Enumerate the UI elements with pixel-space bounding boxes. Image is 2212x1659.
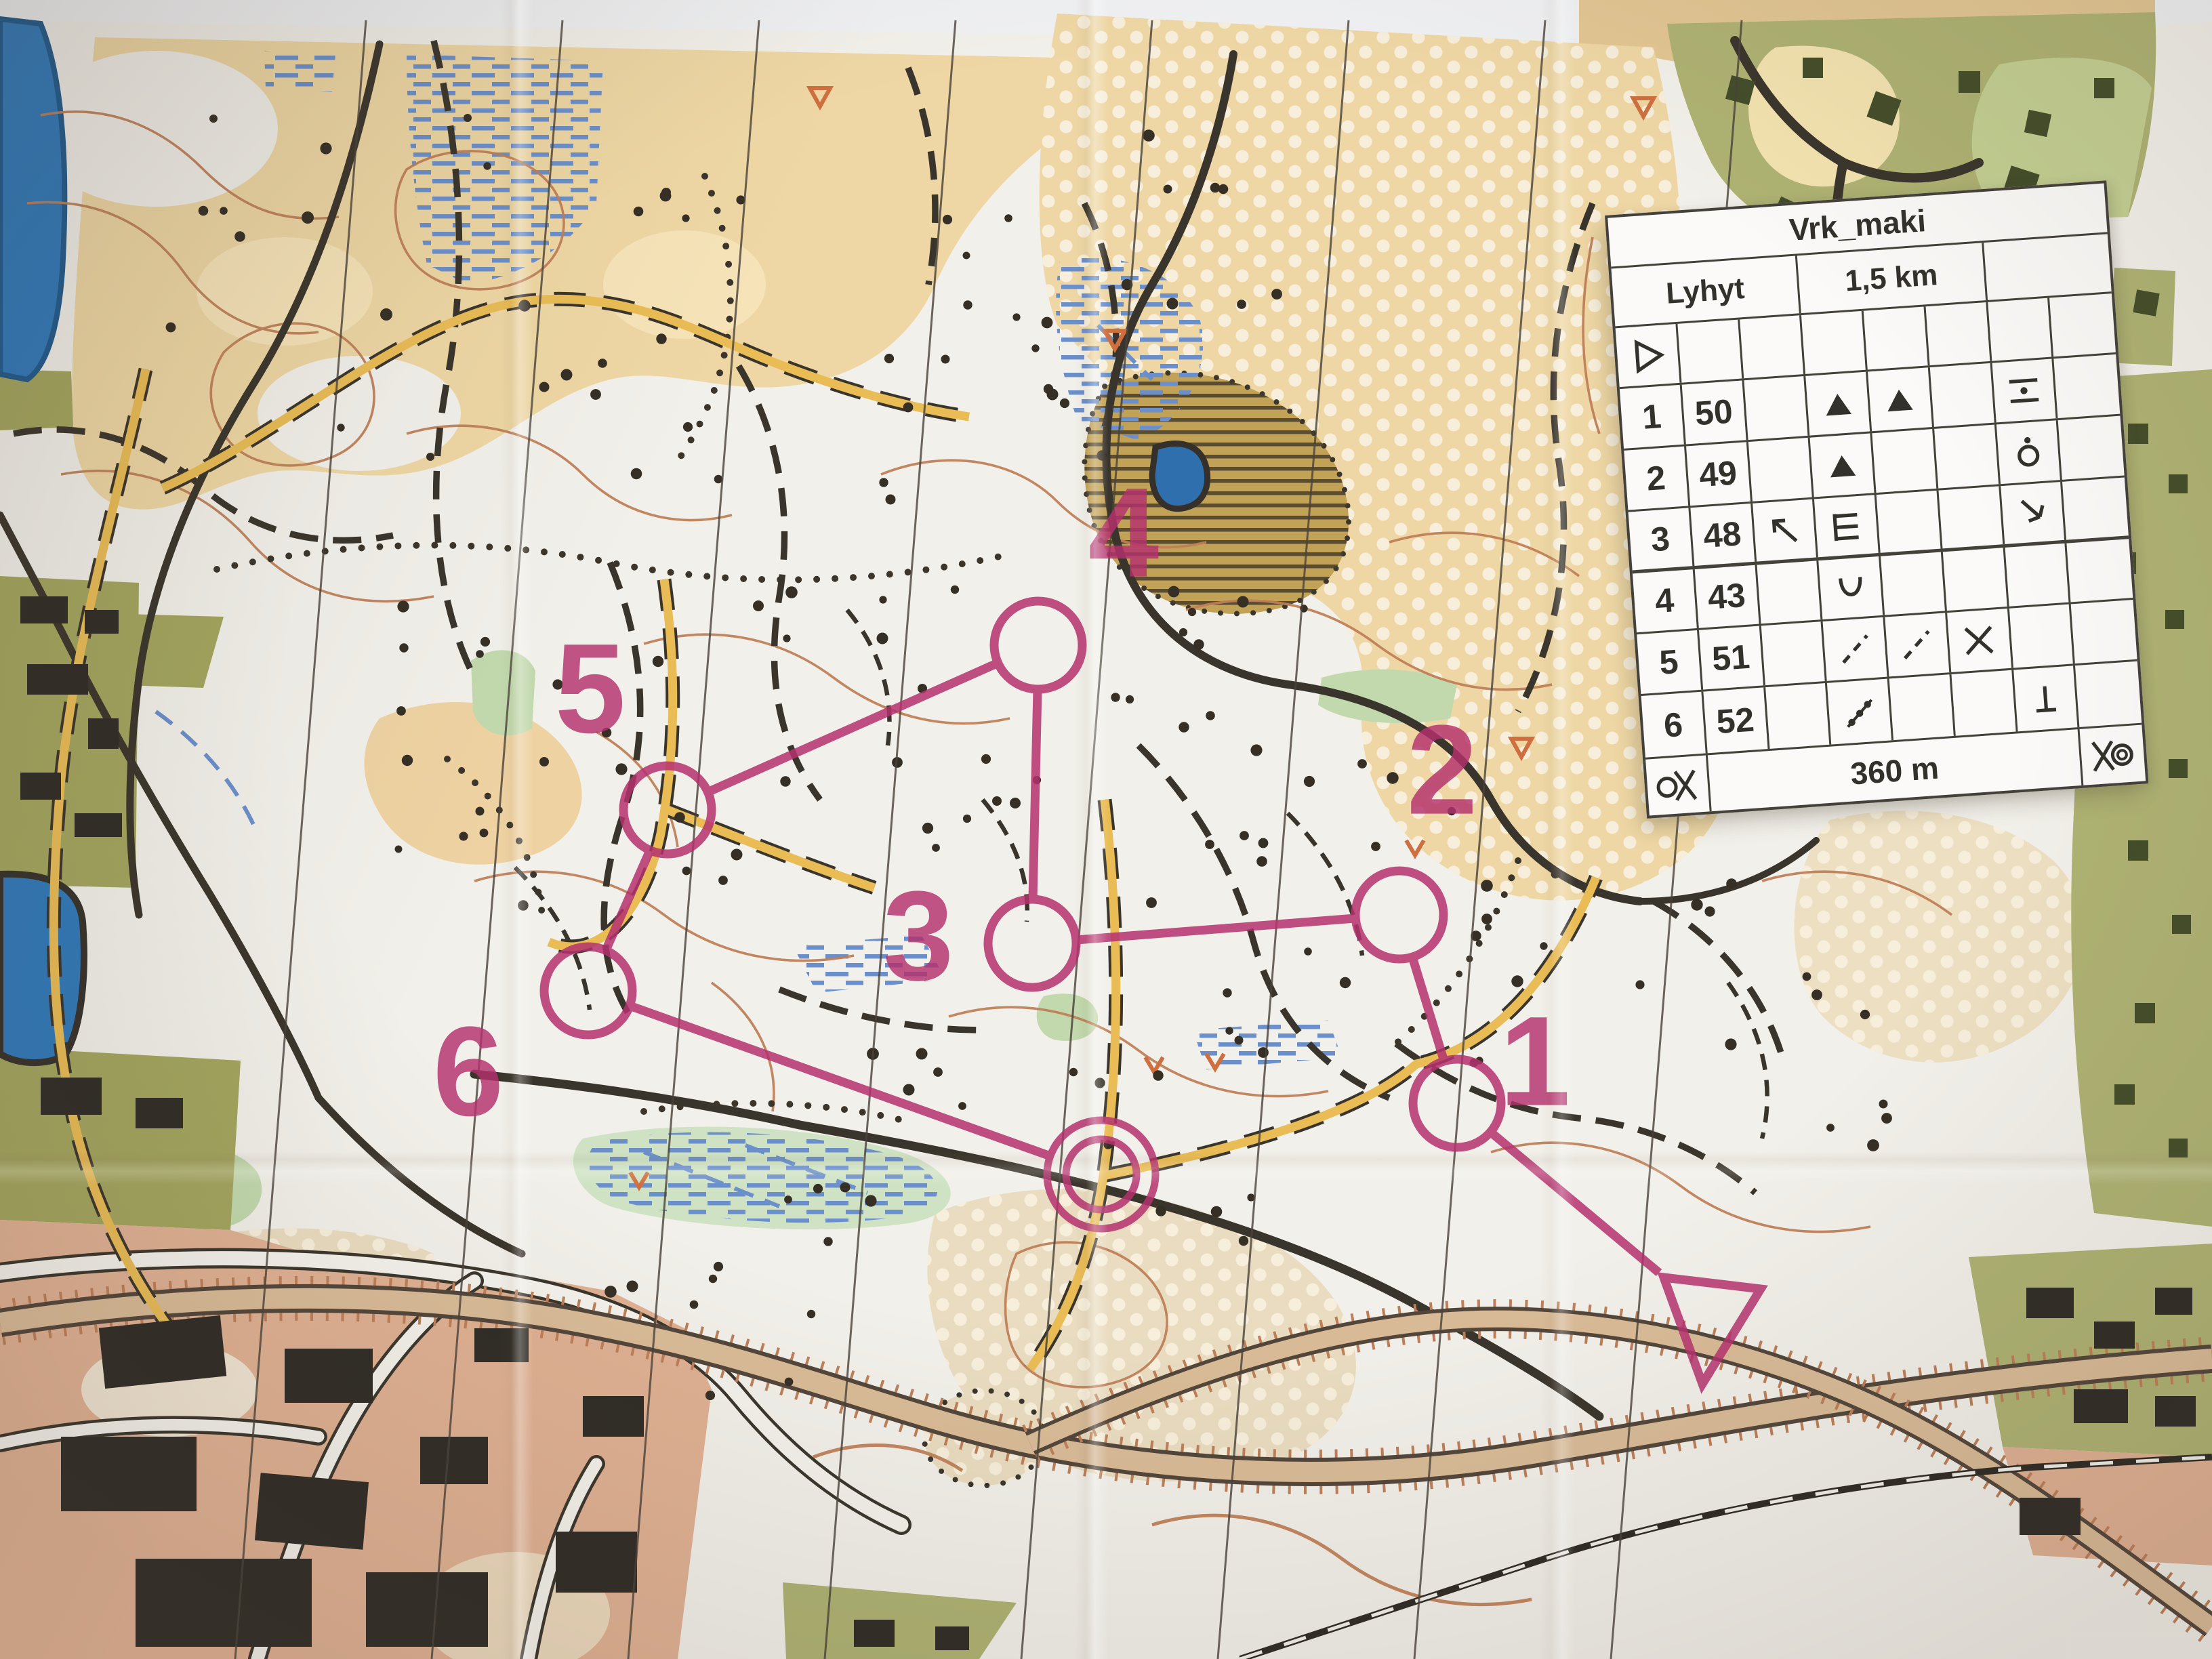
course-name: Lyhyt: [1612, 255, 1802, 326]
control-number-5: 5: [555, 625, 622, 752]
sheet-grid: 1 50 2 49 3 48 4: [1616, 293, 2142, 758]
start-triangle-icon: [1616, 324, 1682, 387]
crossing-icon: [1947, 609, 2013, 672]
path-icon: [1885, 613, 1951, 677]
course-length: 1,5 km: [1797, 243, 1988, 313]
control-number-6: 6: [433, 1008, 500, 1135]
funnel-to-finish-icon: [1645, 755, 1711, 815]
lake: [0, 19, 64, 380]
control-description-sheet: Vrk_maki Lyhyt 1,5 km 1 50 2 49: [1605, 180, 2148, 819]
photo-of-orienteering-map: 1 2 3 4 5 6 Vrk_maki Lyhyt 1,5 km 1 50 2…: [0, 0, 2212, 1659]
earth-bank-icon: [1814, 495, 1881, 557]
control-number-2: 2: [1407, 706, 1474, 834]
pond: [0, 874, 84, 1063]
small-pond: [1152, 444, 1208, 509]
course-climb: [1984, 234, 2112, 300]
hill-icon: [1868, 367, 1934, 431]
hill-icon: [1810, 433, 1877, 497]
taped-route-finish-icon: [2080, 725, 2146, 785]
control-number-1: 1: [1500, 998, 1567, 1125]
control-number-4: 4: [1088, 469, 1155, 596]
path-icon: [1823, 617, 1889, 681]
control-number-3: 3: [883, 872, 950, 1000]
between-icon: [1992, 359, 2058, 422]
knoll-dot-icon: [1996, 420, 2062, 484]
arrow-northwest-icon: [1753, 499, 1819, 561]
foot-icon: [2013, 665, 2080, 731]
hill-icon: [1805, 371, 1872, 435]
bend-southeast-icon: [2001, 482, 2067, 544]
stone-wall-icon: [1827, 679, 1893, 745]
reentrant-icon: [1819, 556, 1885, 619]
